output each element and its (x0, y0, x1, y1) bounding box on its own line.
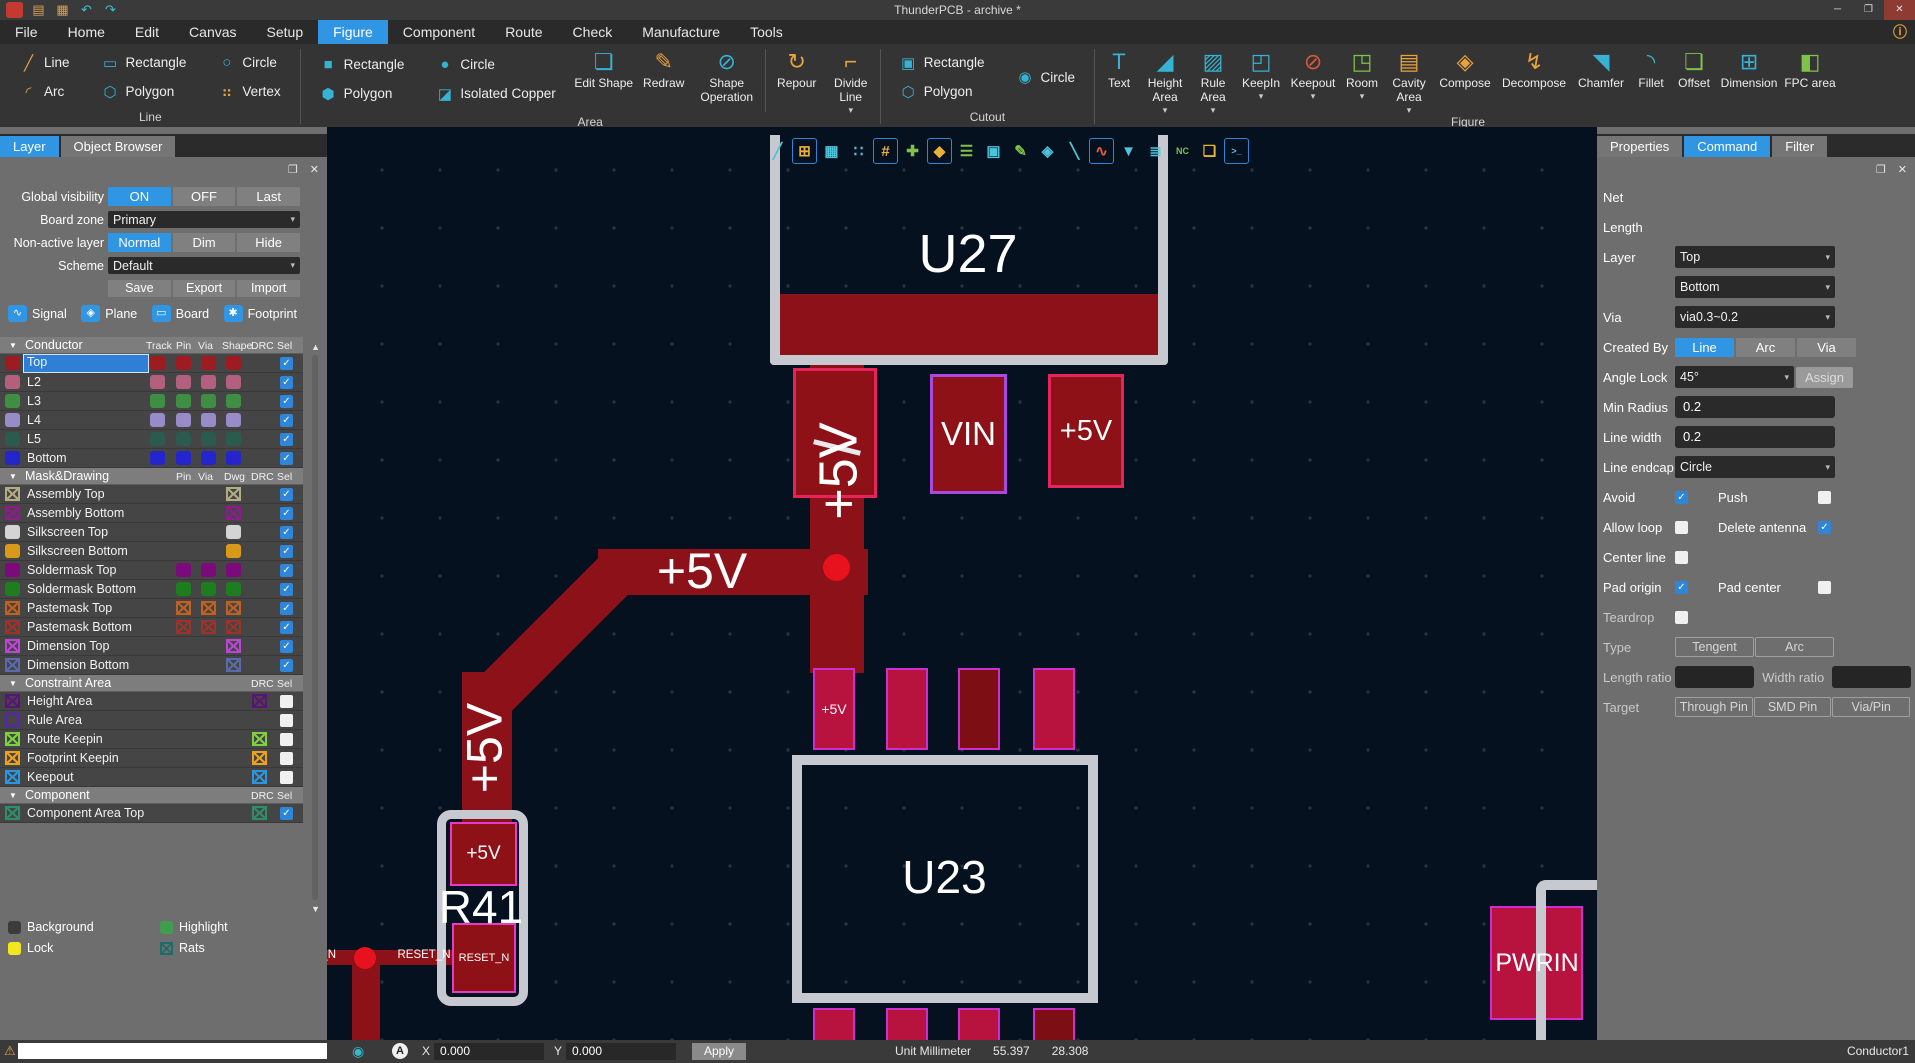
menu-tools[interactable]: Tools (735, 20, 798, 44)
layer-row-height-area[interactable]: Height Area (0, 692, 303, 711)
tab-filter[interactable]: Filter (1772, 136, 1827, 157)
u23-pad[interactable] (813, 1008, 855, 1040)
dropdown-arrow-icon[interactable]: ▾ (848, 105, 853, 115)
ribbon-group-area: ■Rectangle⬢Polygon●Circle◪Isolated Coppe… (304, 44, 877, 127)
import-button[interactable]: Import (237, 280, 300, 297)
visibility-swatch[interactable] (226, 563, 241, 577)
visibility-swatch[interactable] (201, 375, 216, 389)
section-header-conductor[interactable]: ▼ConductorTrackPinViaShapeDRCSel (0, 337, 303, 354)
properties-panel: Properties Command Filter ❐ ✕ Net Length… (1597, 127, 1915, 1040)
layer-row-silkscreen-top[interactable]: Silkscreen Top✓ (0, 523, 303, 542)
visibility-swatch[interactable] (226, 601, 241, 615)
u23-pad[interactable] (958, 1008, 1000, 1040)
collapse-arrow-icon[interactable]: ▼ (9, 791, 17, 800)
ribbon-item-text[interactable]: TText (1098, 44, 1140, 115)
layer-row-keepout[interactable]: Keepout (0, 768, 303, 787)
trace-reset-n-vertical[interactable] (352, 958, 380, 1040)
ribbon-item-polygon[interactable]: ⬢Polygon (320, 81, 405, 106)
select-checkbox[interactable]: ✓ (280, 545, 293, 558)
info-icon[interactable]: ⓘ (1893, 22, 1907, 42)
visibility-swatch[interactable] (226, 451, 241, 465)
close-button[interactable]: ✕ (1884, 0, 1915, 20)
console-icon[interactable]: >_ (1224, 138, 1249, 164)
scroll-up-icon[interactable]: ▲ (311, 342, 320, 352)
visibility-swatch[interactable] (201, 582, 216, 596)
visibility-swatch[interactable] (226, 658, 241, 672)
global-visibility-last-button[interactable]: Last (237, 187, 300, 206)
visibility-swatch[interactable] (176, 601, 191, 615)
layer-color-swatch (5, 356, 20, 370)
select-checkbox[interactable]: ✓ (280, 602, 293, 615)
cavity-area-icon: ▤ (1399, 46, 1420, 77)
visibility-swatch[interactable] (150, 375, 165, 389)
visibility-swatch[interactable] (226, 413, 241, 427)
layer-row-footprint-keepin[interactable]: Footprint Keepin (0, 749, 303, 768)
ribbon-item-room[interactable]: ◳Room▾ (1340, 44, 1384, 115)
ribbon-item-circle[interactable]: ◉Circle (1017, 65, 1076, 90)
visibility-swatch[interactable] (226, 375, 241, 389)
u23-pad[interactable] (958, 668, 1000, 750)
angle-lock-label: Angle Lock (1603, 370, 1675, 385)
ribbon-item-decompose[interactable]: ↯Decompose (1496, 44, 1572, 115)
select-checkbox[interactable]: ✓ (280, 621, 293, 634)
pad-center-checkbox[interactable] (1818, 581, 1831, 594)
layer-panel-controls: Global visibility ON OFF Last Board zone… (0, 188, 300, 303)
board-zone-select[interactable]: Primary ▾ (108, 211, 300, 228)
close-icon[interactable]: ✕ (1898, 163, 1907, 176)
select-checkbox[interactable] (280, 752, 293, 765)
visibility-swatch[interactable] (201, 451, 216, 465)
ribbon-item-circle[interactable]: ●Circle (436, 52, 555, 77)
visibility-swatch[interactable] (176, 620, 191, 634)
board-zone-label: Board zone (0, 213, 104, 227)
ribbon-item-fillet[interactable]: ◝Fillet (1630, 44, 1672, 115)
ribbon-item-rectangle[interactable]: ■Rectangle (320, 52, 405, 77)
visibility-swatch[interactable] (226, 356, 241, 370)
fillet-icon: ◝ (1647, 46, 1656, 77)
type-label: Type (1603, 640, 1675, 655)
layer-color-swatch (5, 525, 20, 539)
visibility-swatch[interactable] (201, 356, 216, 370)
layer-color-swatch (5, 732, 20, 746)
close-icon[interactable]: ✕ (310, 163, 319, 176)
menubar: FileHomeEditCanvasSetupFigureComponentRo… (0, 20, 1915, 44)
non-active-dim-button[interactable]: Dim (173, 233, 236, 252)
move-origin-icon[interactable]: ✚ (900, 138, 925, 164)
layer-color-swatch (5, 601, 20, 615)
scheme-select[interactable]: Default ▾ (108, 257, 300, 274)
minimize-button[interactable]: ─ (1822, 0, 1853, 20)
ribbon-item-repour[interactable]: ↻Repour (769, 44, 825, 115)
layer-top-select[interactable]: Top▾ (1675, 246, 1835, 268)
section-header-mask-drawing[interactable]: ▼Mask&DrawingPinViaDwgDRCSel (0, 468, 303, 485)
select-checkbox[interactable]: ✓ (280, 583, 293, 596)
delete-antenna-checkbox[interactable]: ✓ (1818, 521, 1831, 534)
visibility-swatch[interactable] (252, 732, 267, 746)
target-through-pin-button[interactable]: Through Pin (1675, 697, 1753, 717)
select-checkbox[interactable]: ✓ (280, 659, 293, 672)
layer-color-swatch (5, 694, 20, 708)
ribbon-item-rectangle[interactable]: ▭Rectangle (102, 50, 187, 75)
ribbon-item-arc[interactable]: ◜Arc (20, 79, 70, 104)
export-button[interactable]: Export (173, 280, 236, 297)
center-line-checkbox[interactable] (1675, 551, 1688, 564)
length-ratio-input[interactable] (1675, 666, 1754, 688)
visibility-swatch[interactable] (252, 694, 267, 708)
visibility-swatch[interactable] (252, 806, 267, 820)
visibility-swatch[interactable] (226, 432, 241, 446)
copy-stack-icon[interactable]: ❏ (1197, 138, 1222, 164)
isolated-copper-icon: ◪ (436, 85, 453, 103)
select-checkbox[interactable]: ✓ (280, 433, 293, 446)
u23-pad[interactable] (1033, 1008, 1075, 1040)
layer-color-swatch (5, 639, 20, 653)
keepin-icon: ◰ (1251, 46, 1272, 77)
layer-row-soldermask-bottom[interactable]: Soldermask Bottom✓ (0, 580, 303, 599)
via-label: Via (1603, 310, 1675, 325)
u27-pad-plus5v-right[interactable]: +5V (1048, 374, 1124, 488)
pcb-canvas[interactable]: ╱⊞▦∷#✚◆☰▣✎◈╲∿▼≣NC❏>_ VIN +5V +5V +5V RES… (327, 127, 1597, 1040)
divide-line-icon: ⌐ (844, 46, 857, 77)
created-by-arc-button[interactable]: Arc (1736, 338, 1795, 357)
select-checkbox[interactable] (280, 695, 293, 708)
tab-object-browser[interactable]: Object Browser (61, 136, 176, 157)
u23-pad[interactable] (886, 1008, 928, 1040)
component-chip-icon[interactable]: ▣ (981, 138, 1006, 164)
u23-pad-plus5v[interactable]: +5V (813, 668, 855, 750)
layer-row-assembly-bottom[interactable]: Assembly Bottom✓ (0, 504, 303, 523)
legend-background: Background (8, 920, 160, 934)
visibility-swatch[interactable] (176, 356, 191, 370)
type-tengent-button[interactable]: Tengent (1675, 637, 1754, 657)
x-coordinate-input[interactable]: 0.000 (434, 1043, 544, 1060)
ribbon-item-line[interactable]: ╱Line (20, 50, 70, 75)
select-checkbox[interactable]: ✓ (280, 488, 293, 501)
measure-icon[interactable]: ╱ (765, 138, 790, 164)
message-input[interactable] (18, 1043, 327, 1059)
polygon-outline-icon: ⬡ (102, 83, 119, 101)
select-checkbox[interactable]: ✓ (280, 357, 293, 370)
ribbon-item-circle[interactable]: ○Circle (218, 50, 280, 75)
ribbon-item-polygon[interactable]: ⬡Polygon (102, 79, 187, 104)
dropdown-arrow-icon[interactable]: ▾ (1311, 91, 1316, 101)
layer-row-top[interactable]: Top✓ (0, 354, 303, 373)
window-controls: ─❐✕ (1822, 0, 1915, 20)
layer-row-l5[interactable]: L5✓ (0, 430, 303, 449)
scrollbar[interactable] (312, 355, 318, 900)
select-checkbox[interactable] (280, 771, 293, 784)
visibility-swatch[interactable] (226, 525, 241, 539)
layer-row-dimension-bottom[interactable]: Dimension Bottom✓ (0, 656, 303, 675)
menu-component[interactable]: Component (388, 20, 490, 44)
dropdown-arrow-icon[interactable]: ▾ (1407, 105, 1412, 115)
snap-grid-icon[interactable]: # (873, 138, 898, 164)
ribbon-item-isolated-copper[interactable]: ◪Isolated Copper (436, 81, 555, 106)
filter-plane[interactable]: ◈Plane (81, 305, 137, 322)
absolute-coord-icon[interactable]: A (392, 1043, 408, 1059)
visibility-swatch[interactable] (252, 751, 267, 765)
ribbon-item-offset[interactable]: ❏Offset (1672, 44, 1716, 115)
visibility-swatch[interactable] (201, 601, 216, 615)
ribbon-item-rule-area[interactable]: ▨Rule Area▾ (1190, 44, 1236, 115)
width-ratio-input[interactable] (1832, 666, 1911, 688)
menu-route[interactable]: Route (490, 20, 557, 44)
grid-icon[interactable]: ▦ (819, 138, 844, 164)
layer-table: ▼ConductorTrackPinViaShapeDRCSelTop✓L2✓L… (0, 337, 303, 823)
decompose-icon: ↯ (1525, 46, 1543, 77)
visibility-swatch[interactable] (226, 506, 241, 520)
visibility-swatch[interactable] (150, 356, 165, 370)
select-checkbox[interactable]: ✓ (280, 414, 293, 427)
filter-funnel-icon[interactable]: ▼ (1116, 138, 1141, 164)
layer-row-pastemask-top[interactable]: Pastemask Top✓ (0, 599, 303, 618)
layer-color-swatch (5, 487, 20, 501)
target-via-pin-button[interactable]: Via/Pin (1832, 697, 1910, 717)
visibility-swatch[interactable] (176, 582, 191, 596)
layer-row-dimension-top[interactable]: Dimension Top✓ (0, 637, 303, 656)
active-layer-indicator[interactable]: Conductor1 (1847, 1044, 1909, 1058)
nc-drill-icon[interactable]: NC (1170, 138, 1195, 164)
edit-pencil-icon[interactable]: ✎ (1008, 138, 1033, 164)
layer-row-assembly-top[interactable]: Assembly Top✓ (0, 485, 303, 504)
circle-outline-icon: ○ (218, 54, 235, 71)
visibility-swatch[interactable] (176, 451, 191, 465)
net-path-icon[interactable]: ∿ (1089, 138, 1114, 164)
layer-row-pastemask-bottom[interactable]: Pastemask Bottom✓ (0, 618, 303, 637)
visibility-swatch[interactable] (176, 563, 191, 577)
ribbon-item-vertex[interactable]: ⠶Vertex (218, 79, 280, 104)
fpc-area-icon: ◧ (1800, 46, 1821, 77)
scroll-down-icon[interactable]: ▼ (311, 904, 320, 914)
save-button[interactable]: Save (108, 280, 171, 297)
dropdown-arrow-icon[interactable]: ▾ (1360, 91, 1365, 101)
via-select[interactable]: via0.3~0.2▾ (1675, 306, 1835, 328)
pad-origin-checkbox[interactable]: ✓ (1675, 581, 1688, 594)
ribbon-item-fpc-area[interactable]: ◧FPC area (1782, 44, 1838, 115)
delete-antenna-label: Delete antenna (1718, 520, 1818, 535)
visibility-swatch[interactable] (226, 487, 241, 501)
layer-row-l4[interactable]: L4✓ (0, 411, 303, 430)
filter-footprint[interactable]: ✱Footprint (224, 305, 297, 322)
ribbon-item-redraw[interactable]: ✎Redraw (636, 44, 692, 115)
dropdown-arrow-icon[interactable]: ▾ (1211, 105, 1216, 115)
legend-swatch (160, 921, 173, 934)
rule-area-icon: ▨ (1203, 46, 1224, 77)
select-checkbox[interactable]: ✓ (280, 452, 293, 465)
u23-refdes-label: U23 (867, 854, 1022, 900)
visibility-swatch[interactable] (226, 639, 241, 653)
visibility-swatch[interactable] (150, 432, 165, 446)
layer-row-l2[interactable]: L2✓ (0, 373, 303, 392)
chevron-down-icon: ▾ (290, 260, 295, 271)
ribbon-item-chamfer[interactable]: ◥Chamfer (1572, 44, 1630, 115)
select-checkbox[interactable] (280, 714, 293, 727)
layer-color-swatch (5, 506, 20, 520)
popout-icon[interactable]: ❐ (288, 163, 298, 176)
ribbon-item-height-area[interactable]: ◢Height Area▾ (1140, 44, 1190, 115)
design-list-icon[interactable]: ☰ (954, 138, 979, 164)
ribbon-item-keepin[interactable]: ◰KeepIn▾ (1236, 44, 1286, 115)
window-title: ThunderPCB - archive * (0, 3, 1915, 17)
ribbon-item-dimension[interactable]: ⊞Dimension (1716, 44, 1782, 115)
line-endcap-select[interactable]: Circle▾ (1675, 456, 1835, 478)
target-label: Target (1603, 700, 1675, 715)
push-checkbox[interactable] (1818, 491, 1831, 504)
visibility-swatch[interactable] (150, 394, 165, 408)
collapse-arrow-icon[interactable]: ▼ (9, 341, 17, 350)
created-by-via-button[interactable]: Via (1797, 338, 1856, 357)
visibility-swatch[interactable] (226, 394, 241, 408)
room-icon: ◳ (1352, 46, 1373, 77)
teardrop-checkbox[interactable] (1675, 611, 1688, 624)
ribbon-item-rectangle[interactable]: ▣Rectangle (900, 50, 985, 75)
visibility-swatch[interactable] (201, 563, 216, 577)
menu-check[interactable]: Check (558, 20, 628, 44)
r41-refdes-label: R41 (401, 884, 561, 930)
hierarchy-icon[interactable]: ≣ (1143, 138, 1168, 164)
section-header-constraint-area[interactable]: ▼Constraint AreaDRCSel (0, 675, 303, 692)
reset-n-net-label-clipped: RESET_N (327, 950, 337, 962)
select-checkbox[interactable] (280, 733, 293, 746)
ribbon-group-figure: TText◢Height Area▾▨Rule Area▾◰KeepIn▾⊘Ke… (1098, 44, 1838, 127)
avoid-checkbox[interactable]: ✓ (1675, 491, 1688, 504)
visibility-swatch[interactable] (252, 770, 267, 784)
menu-canvas[interactable]: Canvas (174, 20, 251, 44)
visibility-swatch[interactable] (176, 413, 191, 427)
menu-home[interactable]: Home (53, 20, 120, 44)
layer-row-l3[interactable]: L3✓ (0, 392, 303, 411)
layer-color-swatch (5, 770, 20, 784)
target-smd-pin-button[interactable]: SMD Pin (1754, 697, 1832, 717)
via-reset-n[interactable] (354, 947, 376, 969)
visibility-swatch[interactable] (226, 620, 241, 634)
layer-row-route-keepin[interactable]: Route Keepin (0, 730, 303, 749)
select-checkbox[interactable]: ✓ (280, 376, 293, 389)
visibility-swatch[interactable] (176, 394, 191, 408)
ribbon-item-polygon[interactable]: ⬡Polygon (900, 79, 985, 104)
visibility-swatch[interactable] (201, 620, 216, 634)
ribbon-item-edit-shape[interactable]: ❏Edit Shape (572, 44, 636, 115)
compose-icon: ◈ (1457, 46, 1474, 77)
visibility-swatch[interactable] (150, 413, 165, 427)
u23-pad[interactable] (886, 668, 928, 750)
zoom-grid-icon[interactable]: ⊞ (792, 138, 817, 164)
net-label: Net (1603, 190, 1675, 205)
menu-manufacture[interactable]: Manufacture (627, 20, 735, 44)
collapse-arrow-icon[interactable]: ▼ (9, 679, 17, 688)
global-visibility-off-button[interactable]: OFF (173, 187, 236, 206)
plane-icon: ◈ (81, 305, 100, 322)
origin-target-icon[interactable]: ◈ (1035, 138, 1060, 164)
tab-layer[interactable]: Layer (0, 136, 59, 157)
ribbon-item-divide-line[interactable]: ⌐Divide Line▾ (825, 44, 877, 115)
type-arc-button[interactable]: Arc (1755, 637, 1834, 657)
filter-signal[interactable]: ∿Signal (8, 305, 67, 322)
tab-properties[interactable]: Properties (1597, 136, 1682, 157)
created-by-line-button[interactable]: Line (1675, 338, 1734, 357)
global-visibility-on-button[interactable]: ON (108, 187, 171, 206)
plus5v-net-label-vertical: +5V (812, 389, 864, 554)
y-coordinate-input[interactable]: 0.000 (566, 1043, 676, 1060)
visibility-swatch[interactable] (201, 432, 216, 446)
snap-origin-icon[interactable]: ◉ (352, 1043, 364, 1060)
collapse-arrow-icon[interactable]: ▼ (9, 472, 17, 481)
canvas-toolbar: ╱⊞▦∷#✚◆☰▣✎◈╲∿▼≣NC❏>_ (765, 138, 1249, 165)
dot-grid-icon[interactable]: ∷ (846, 138, 871, 164)
scheme-label: Scheme (0, 259, 104, 273)
layer-row-bottom[interactable]: Bottom✓ (0, 449, 303, 468)
filter-board[interactable]: ▭Board (152, 305, 209, 322)
edit-shape-icon: ❏ (594, 46, 614, 77)
visibility-swatch[interactable] (176, 432, 191, 446)
chevron-down-icon: ▾ (1825, 252, 1830, 263)
min-radius-input[interactable]: 0.2 (1675, 396, 1835, 418)
visibility-swatch[interactable] (226, 582, 241, 596)
select-checkbox[interactable]: ✓ (280, 807, 293, 820)
layer-color-swatch (5, 544, 20, 558)
layer-bottom-select[interactable]: Bottom▾ (1675, 276, 1835, 298)
ribbon-item-shape-operation[interactable]: ⊘Shape Operation (692, 44, 762, 115)
global-visibility-label: Global visibility (0, 190, 104, 204)
visibility-swatch[interactable] (201, 394, 216, 408)
ribbon-item-cavity-area[interactable]: ▤Cavity Area▾ (1384, 44, 1434, 115)
allow-loop-checkbox[interactable] (1675, 521, 1688, 534)
select-checkbox[interactable]: ✓ (280, 395, 293, 408)
layer-row-soldermask-top[interactable]: Soldermask Top✓ (0, 561, 303, 580)
layer-row-component-area-top[interactable]: Component Area Top✓ (0, 804, 303, 823)
unit-readout: Unit Millimeter 55.397 28.308 (895, 1044, 1088, 1058)
ribbon-item-keepout[interactable]: ⊘Keepout▾ (1286, 44, 1340, 115)
section-header-component[interactable]: ▼ComponentDRCSel (0, 787, 303, 804)
visibility-swatch[interactable] (150, 451, 165, 465)
u23-pad[interactable] (1033, 668, 1075, 750)
select-checkbox[interactable]: ✓ (280, 526, 293, 539)
u27-pad-vin[interactable]: VIN (930, 374, 1007, 494)
menu-figure[interactable]: Figure (318, 20, 388, 44)
ribbon-item-compose[interactable]: ◈Compose (1434, 44, 1496, 115)
apply-button[interactable]: Apply (692, 1043, 746, 1060)
dropdown-arrow-icon[interactable]: ▾ (1259, 91, 1264, 101)
ruler-icon[interactable]: ╲ (1062, 138, 1087, 164)
menu-file[interactable]: File (0, 20, 53, 44)
maximize-button[interactable]: ❐ (1853, 0, 1884, 20)
layer-color-swatch (5, 713, 20, 727)
allow-loop-label: Allow loop (1603, 520, 1675, 535)
via-junction[interactable] (823, 554, 850, 581)
layer-row-rule-area[interactable]: Rule Area (0, 711, 303, 730)
layers-icon[interactable]: ◆ (927, 138, 952, 164)
tab-command[interactable]: Command (1684, 136, 1770, 157)
push-label: Push (1718, 490, 1818, 505)
line-width-input[interactable]: 0.2 (1675, 426, 1835, 448)
layer-row-silkscreen-bottom[interactable]: Silkscreen Bottom✓ (0, 542, 303, 561)
select-checkbox[interactable]: ✓ (280, 507, 293, 520)
visibility-swatch[interactable] (176, 375, 191, 389)
visibility-swatch[interactable] (226, 544, 241, 558)
menu-setup[interactable]: Setup (252, 20, 319, 44)
menu-edit[interactable]: Edit (120, 20, 174, 44)
dropdown-arrow-icon[interactable]: ▾ (1163, 105, 1168, 115)
non-active-normal-button[interactable]: Normal (108, 233, 171, 252)
layer-color-swatch (5, 413, 20, 427)
visibility-swatch[interactable] (201, 413, 216, 427)
assign-button[interactable]: Assign (1796, 367, 1853, 388)
select-checkbox[interactable]: ✓ (280, 640, 293, 653)
angle-lock-select[interactable]: 45°▾ (1675, 366, 1794, 388)
popout-icon[interactable]: ❐ (1876, 163, 1886, 176)
select-checkbox[interactable]: ✓ (280, 564, 293, 577)
non-active-hide-button[interactable]: Hide (237, 233, 300, 252)
